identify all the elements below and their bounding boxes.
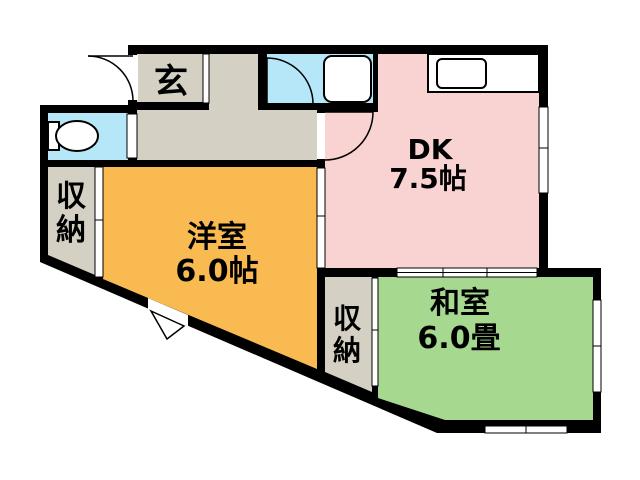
western-room-label: 洋室 (187, 220, 247, 255)
kitchen-sink (437, 59, 486, 88)
japanese-room-label: 和室 (430, 286, 490, 321)
sliding-door-closet-left (95, 167, 103, 277)
closet-left-label-char2: 納 (56, 213, 86, 248)
floor-plan: 玄 DK 7.5帖 洋室 6.0帖 和室 6.0畳 収 納 収 納 (0, 0, 640, 480)
sliding-door-western-dk (317, 168, 325, 268)
genkan-label: 玄 (154, 62, 188, 102)
genkan-partition (203, 54, 209, 103)
entrance-door-arc (88, 56, 133, 101)
western-room-size: 6.0帖 (175, 254, 258, 289)
closet-right-label-char1: 収 (333, 302, 362, 335)
hallway-lower (137, 110, 317, 160)
sliding-door-closet-right (372, 278, 378, 386)
dk-size: 7.5帖 (389, 162, 467, 195)
japanese-room-size: 6.0畳 (417, 321, 500, 356)
toilet-bowl (56, 121, 98, 151)
bathtub (324, 56, 371, 102)
hallway-upper (209, 54, 258, 112)
closet-right-label-char2: 納 (333, 334, 361, 367)
window-dk-right (539, 107, 548, 193)
floor-plan-page: 玄 DK 7.5帖 洋室 6.0帖 和室 6.0畳 収 納 収 納 (0, 0, 640, 480)
dk-door-opening (317, 113, 325, 159)
toilet-door-opening (127, 114, 137, 158)
closet-left-label-char1: 収 (56, 179, 87, 214)
